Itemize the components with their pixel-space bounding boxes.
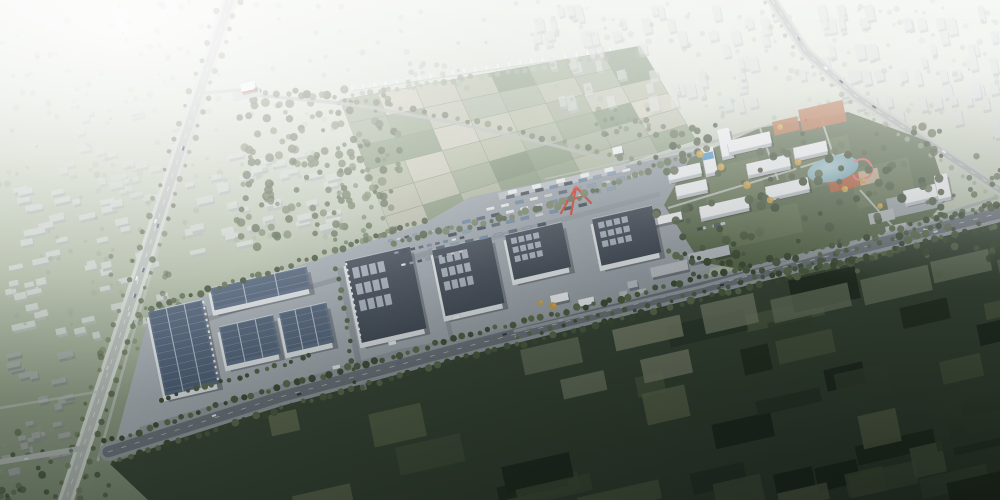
aerial-rendering-frame: [0, 0, 1000, 500]
aerial-rendering-scene: [0, 0, 1000, 500]
